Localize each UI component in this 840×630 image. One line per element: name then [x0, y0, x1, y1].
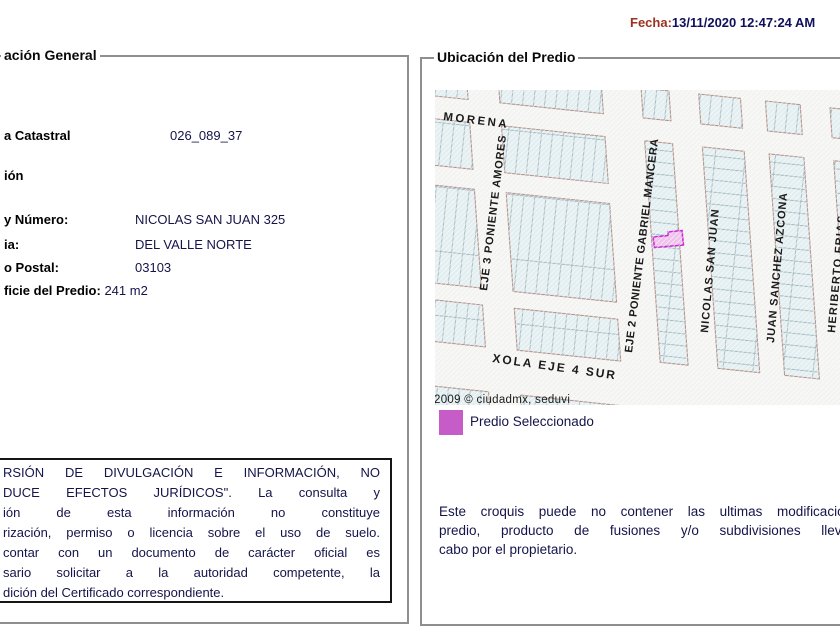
legend-label: Predio Seleccionado: [470, 414, 594, 429]
ubicacion-title: Ubicación del Predio: [434, 49, 578, 65]
field-label: ión: [4, 168, 24, 184]
field-superficie: ficie del Predio: 241 m2: [4, 283, 399, 299]
text-line: ión de esta información no constituye: [3, 503, 380, 523]
field-calle-numero: y Número:NICOLAS SAN JUAN 325: [4, 212, 399, 228]
field-value: NICOLAS SAN JUAN 325: [135, 212, 285, 227]
date-value: 13/11/2020 12:47:24 AM: [672, 15, 815, 30]
text-line: contar con un documento de carácter ofic…: [3, 543, 380, 563]
field-colonia: ia:DEL VALLE NORTE: [4, 237, 399, 253]
field-direccion-header: ión: [4, 168, 399, 184]
ubicacion-panel: Ubicación del Predio MORENAEJE 3 PONIENT…: [420, 57, 840, 626]
field-label: ia:: [4, 237, 135, 253]
selected-parcel-swatch: [439, 410, 463, 435]
text-line: RSIÓN DE DIVULGACIÓN E INFORMACIÓN, NO: [3, 463, 380, 483]
text-line: DUCE EFECTOS JURÍDICOS". La consulta y: [3, 483, 380, 503]
text-line: sario solicitar a la autoridad competent…: [3, 563, 380, 583]
date-line: Fecha:13/11/2020 12:47:24 AM: [630, 15, 815, 30]
field-value: DEL VALLE NORTE: [135, 237, 252, 252]
page: { "header": { "date_label": "Fecha:", "d…: [0, 0, 840, 630]
text-line: Este croquis puede no contener las ultim…: [439, 502, 840, 521]
field-label: a Catastral: [4, 128, 170, 144]
date-label: Fecha:: [630, 15, 672, 30]
text-line: dición del Certificado correspondiente.: [3, 583, 380, 603]
general-info-title: ación General: [1, 47, 100, 63]
field-value: 026_089_37: [170, 128, 242, 143]
text-line: rización, permiso o licencia sobre el us…: [3, 523, 380, 543]
croquis-note: Este croquis puede no contener las ultim…: [439, 502, 840, 559]
field-label: y Número:: [4, 212, 135, 228]
predio-location-map: MORENAEJE 3 PONIENTE AMORESEJE 2 PONIENT…: [435, 90, 840, 405]
field-value: 03103: [135, 260, 171, 275]
field-codigo-postal: o Postal:03103: [4, 260, 399, 276]
map-attribution: 2009 © ciudadmx, seduvi: [435, 394, 570, 405]
legal-disclaimer-box: RSIÓN DE DIVULGACIÓN E INFORMACIÓN, NODU…: [0, 458, 392, 603]
text-line: cabo por el propietario.: [439, 540, 840, 559]
field-cuenta-catastral: a Catastral026_089_37: [4, 128, 399, 144]
text-line: predio, producto de fusiones y/o subdivi…: [439, 521, 840, 540]
field-label: ficie del Predio:: [4, 283, 101, 299]
map-canvas: MORENAEJE 3 PONIENTE AMORESEJE 2 PONIENT…: [435, 90, 840, 405]
field-label: o Postal:: [4, 260, 135, 276]
